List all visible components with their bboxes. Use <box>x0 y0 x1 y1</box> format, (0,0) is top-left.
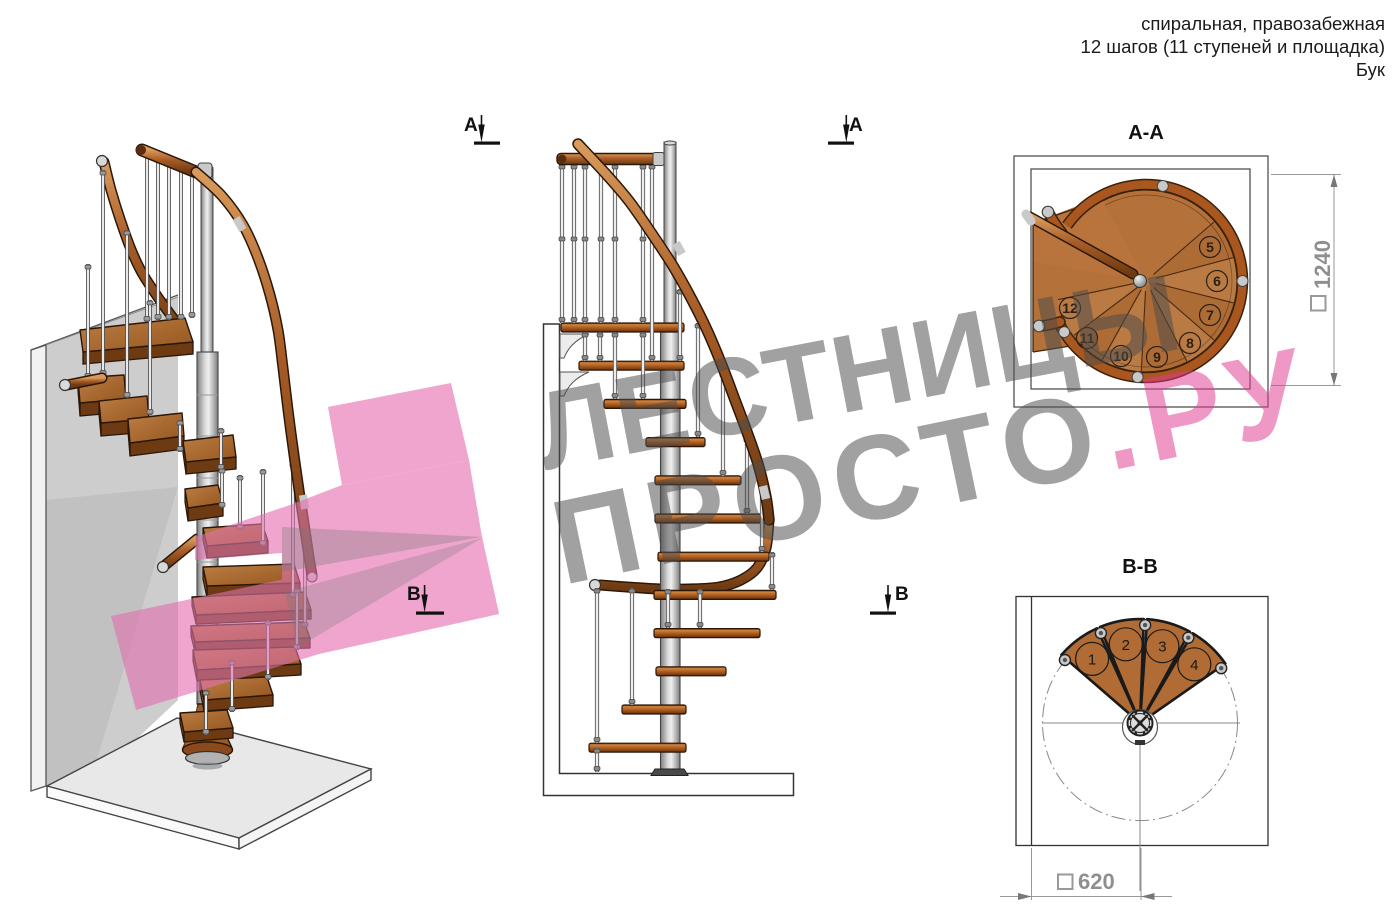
svg-text:4: 4 <box>1190 657 1198 674</box>
svg-text:В: В <box>407 584 421 605</box>
svg-text:6: 6 <box>1213 273 1221 289</box>
svg-text:12 шагов (11 ступеней и площад: 12 шагов (11 ступеней и площадка) <box>1081 36 1385 57</box>
svg-text:2: 2 <box>1122 637 1130 654</box>
svg-text:3: 3 <box>1158 639 1166 656</box>
svg-text:620: 620 <box>1078 869 1115 894</box>
svg-text:7: 7 <box>1206 307 1214 323</box>
svg-text:спиральная, правозабежная: спиральная, правозабежная <box>1141 13 1385 34</box>
svg-text:1: 1 <box>1088 651 1096 668</box>
svg-text:В-В: В-В <box>1122 556 1158 578</box>
svg-text:А-А: А-А <box>1128 122 1164 144</box>
svg-text:Бук: Бук <box>1356 59 1386 80</box>
svg-text:А: А <box>849 115 863 136</box>
svg-text:1240: 1240 <box>1310 240 1335 289</box>
svg-text:А: А <box>464 115 478 136</box>
svg-text:В: В <box>895 584 909 605</box>
svg-text:5: 5 <box>1206 239 1214 255</box>
